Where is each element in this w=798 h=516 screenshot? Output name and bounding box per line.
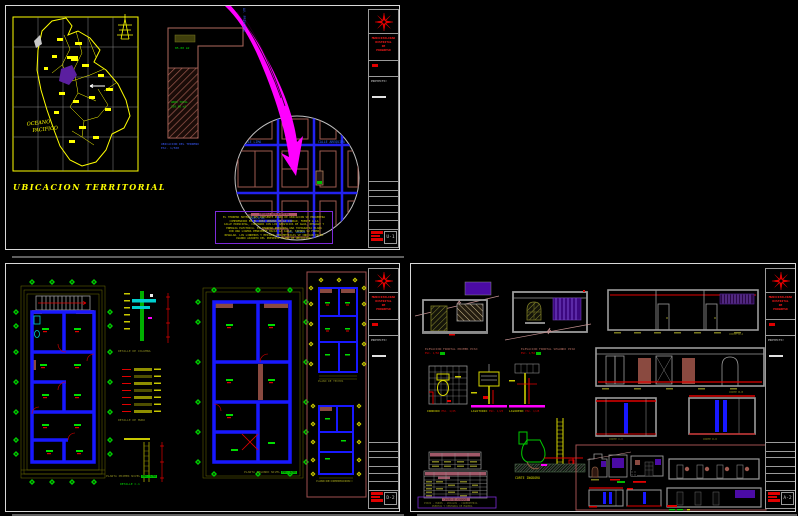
room-section-c	[596, 398, 656, 436]
schedule-table-1	[429, 452, 481, 469]
logo-line: PROGRESO	[369, 48, 398, 52]
titleblock-project-box: PROYECTO:	[369, 336, 398, 442]
project-label: PROYECTO:	[371, 338, 396, 342]
sheet1-title: UBICACION TERRITORIAL	[13, 182, 166, 192]
fixture1-title-text: INODORO	[427, 409, 440, 413]
room-section-d	[689, 396, 755, 434]
titleblock-entry	[369, 220, 398, 229]
titleblock-entry	[369, 212, 398, 220]
plan2-scale-chip: ESC. 1/50	[281, 471, 297, 474]
mid-elevation	[631, 456, 663, 476]
fixture1-scale: ESC. 1/25	[441, 410, 455, 413]
north-arrow-box	[766, 269, 795, 293]
logo-line: PROGRESO	[766, 307, 795, 311]
titleblock-entry	[369, 473, 398, 481]
titleblock-entry	[369, 205, 398, 212]
sheet1-linework: OCEANO PACIFICO 85.00 m2 AREA TOTAL 250.…	[6, 6, 400, 250]
lot-caption-scale: ESC. 1/500	[161, 147, 199, 151]
titleblock-logo: MUNICIPALIDAD DISTRITAL DE PROGRESO	[369, 34, 398, 61]
titleblock-sheetno-row: A-2	[766, 490, 795, 508]
small-section-1	[589, 488, 623, 508]
long-section-a	[608, 290, 758, 334]
titleblock-entry	[369, 457, 398, 466]
titleblock-entry	[766, 457, 795, 466]
titleblock-entry	[766, 481, 795, 490]
floor-plan-2	[195, 287, 309, 478]
detail3-title: DETALLE C-1	[120, 483, 140, 487]
elevation1-title: ELEVACION FRONTAL PRIMER PISO ESC. 1/50	[425, 348, 477, 356]
cad-drawing-preview: OCEANO PACIFICO 85.00 m2 AREA TOTAL 250.…	[0, 0, 798, 516]
section-c-title: CORTE C-C	[609, 438, 623, 441]
titleblock-entry	[369, 466, 398, 473]
axis-markers	[195, 287, 309, 477]
finishes-heading: CUADRO DE ACABADOS	[444, 499, 468, 502]
plan2-title: PLANTA SEGUNDO NIVELESC. 1/50	[244, 471, 297, 475]
elevation1-title-text: ELEVACION FRONTAL PRIMER PISO	[425, 347, 477, 351]
north-arrow-box	[369, 269, 398, 293]
titleblock-sheetno-row: D-2	[369, 490, 398, 508]
lot-area-line2: 250.00 m2	[171, 105, 186, 109]
sheet-ubicacion: OCEANO PACIFICO 85.00 m2 AREA TOTAL 250.…	[5, 5, 400, 250]
sheet-elevaciones: CUADRO DE ACABADOS PISOS - MUROS - ZOCAL…	[410, 263, 796, 512]
sink-detail	[509, 364, 545, 408]
titleblock-project-box: PROYECTO:	[766, 336, 795, 442]
lot-area-label: 85.00 m2	[175, 46, 190, 50]
sheet2-linework	[6, 264, 400, 512]
long-section-b	[596, 348, 764, 390]
svg-text:CALLE LIMA: CALLE LIMA	[242, 140, 261, 144]
elevation2-scale: ESC. 1/50	[521, 352, 535, 355]
fixture3-scale: ESC. 1/25	[525, 410, 539, 413]
plan1-title: PLANTA PRIMER NIVELESC. 1/50	[106, 475, 157, 479]
section-b-title: CORTE B-B	[729, 391, 743, 394]
lavatory-detail	[471, 364, 507, 408]
small-section-2	[627, 488, 661, 506]
titleblock-entry	[766, 442, 795, 451]
section-a-title: CORTE A-A	[729, 333, 743, 336]
sheet1-shadow	[12, 256, 404, 258]
titleblock-entry	[369, 181, 398, 190]
sheet-plantas: PLANTA PRIMER NIVELESC. 1/50 PLANTA SEGU…	[5, 263, 400, 512]
memoria-box: MEMORIA DESCRIPTIVA EL TERRENO MATERIA D…	[215, 211, 333, 244]
foundation-plan	[311, 404, 362, 482]
sheet-number: U-1	[384, 231, 397, 244]
project-label: PROYECTO:	[768, 338, 793, 342]
column-detail	[124, 291, 170, 343]
north-arrow-icon	[375, 13, 393, 31]
plan1-title-text: PLANTA PRIMER NIVEL	[106, 474, 140, 478]
roofplan-title: PLANO DE TECHOS	[318, 380, 343, 383]
lot-plan: 85.00 m2 AREA TOTAL 250.00 m2	[168, 28, 243, 138]
antenna-tower-icon	[117, 14, 133, 39]
room-labels	[40, 328, 83, 454]
ocean-label: OCEANO PACIFICO	[26, 118, 58, 134]
wall-detail	[122, 368, 161, 413]
fixture3-title-text: LAVADERO	[509, 409, 523, 413]
elevation2-title: ELEVACION FRONTAL SEGUNDO PISO ESC. 1/50	[521, 348, 575, 356]
sheet-number: A-2	[781, 492, 794, 505]
lot-area-line1: AREA TOTAL	[171, 100, 188, 104]
floor-plan-1	[13, 279, 113, 485]
memoria-line: CUADRO ADJUNTO DEL PRESENTE PLANO DE UBI…	[216, 237, 332, 241]
walls	[214, 302, 290, 462]
fixture1-title: INODORO ESC. 1/25	[427, 410, 456, 414]
fixture2-title: LAVATORIO ESC. 1/25	[471, 410, 503, 414]
peru-outline	[37, 18, 130, 166]
titleblock-entry	[766, 466, 795, 473]
roof-plan	[309, 278, 367, 380]
logo-line: PROGRESO	[369, 307, 398, 311]
street-label-vertical: AV. PRINCIPAL	[242, 8, 246, 58]
titleblock-project-box: PROYECTO:	[369, 77, 398, 181]
sheet-number: D-2	[384, 492, 397, 505]
svg-text:CALLE AREQUIPA: CALLE AREQUIPA	[318, 140, 345, 144]
titleblock-box	[766, 320, 795, 336]
plan2-title-text: PLANTA SEGUNDO NIVEL	[244, 470, 280, 474]
toilet-plan-detail	[429, 366, 467, 404]
north-arrow-box	[369, 10, 398, 34]
titleblock-entry	[369, 196, 398, 205]
schedule-table-2	[424, 471, 487, 498]
titleblock-logo: MUNICIPALIDAD DISTRITAL DE PROGRESO	[369, 293, 398, 320]
elevation-1	[415, 282, 499, 336]
detail2-title: DETALLE DE MURO	[118, 419, 145, 423]
house-elevation-2	[609, 455, 627, 481]
plan1-scale-chip: ESC. 1/50	[141, 475, 157, 478]
lot-caption: UBICACION DEL TERRENO ESC. 1/500	[161, 143, 199, 151]
finishes-note-box: CUADRO DE ACABADOS PISOS - MUROS - ZOCAL…	[418, 497, 496, 508]
title-block: MUNICIPALIDAD DISTRITAL DE PROGRESO PROY…	[368, 9, 399, 248]
long-low-section	[669, 459, 759, 479]
titleblock-box	[369, 320, 398, 336]
project-label: PROYECTO:	[371, 79, 396, 83]
titleblock-entry	[369, 481, 398, 490]
title-block: MUNICIPALIDAD DISTRITAL DE PROGRESO PROY…	[765, 268, 796, 509]
map-pointer	[90, 85, 105, 88]
foundation-title: PLANO DE CIMENTACION	[316, 480, 350, 483]
titleblock-logo: MUNICIPALIDAD DISTRITAL DE PROGRESO	[766, 293, 795, 320]
title-block: MUNICIPALIDAD DISTRITAL DE PROGRESO PROY…	[368, 268, 399, 509]
corte-inodoro-title: CORTE INODORO	[515, 476, 540, 480]
peru-map: OCEANO PACIFICO	[13, 14, 138, 171]
fixture2-title-text: LAVATORIO	[471, 409, 487, 413]
elevation-2	[505, 290, 591, 340]
elevation2-title-text: ELEVACION FRONTAL SEGUNDO PISO	[521, 347, 575, 351]
sheet3-linework: CUADRO DE ACABADOS PISOS - MUROS - ZOCAL…	[411, 264, 796, 512]
titleblock-entry	[369, 442, 398, 451]
small-section-3	[667, 488, 761, 511]
section-d-title: CORTE D-D	[703, 438, 717, 441]
toilet-section-detail	[515, 418, 585, 472]
fixture3-title: LAVADERO ESC. 1/25	[509, 410, 539, 414]
titleblock-entry	[766, 473, 795, 481]
elevation1-scale: ESC. 1/50	[425, 352, 439, 355]
fixture2-scale: ESC. 1/25	[489, 410, 503, 413]
titleblock-box	[369, 61, 398, 77]
north-arrow-icon	[772, 272, 790, 290]
north-arrow-icon	[375, 272, 393, 290]
walls	[32, 312, 94, 462]
detail1-title: DETALLE DE COLUMNA	[118, 350, 151, 354]
titleblock-sheetno-row: U-1	[369, 229, 398, 247]
finishes-line: PUERTAS Y VENTANAS DE MADERA	[432, 505, 473, 508]
